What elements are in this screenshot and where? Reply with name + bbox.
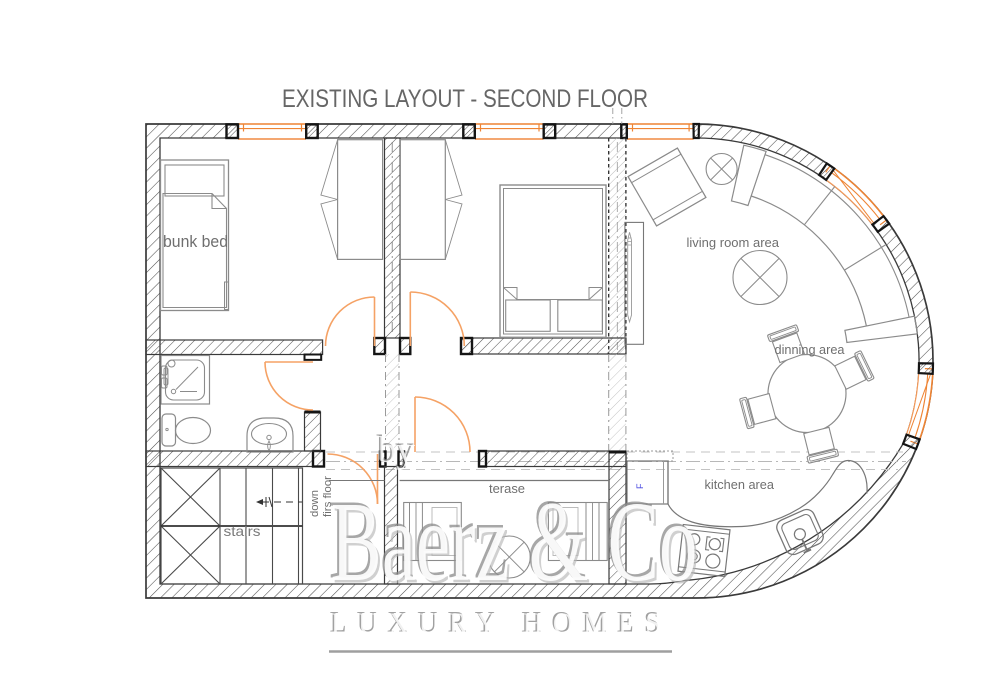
svg-text:by: by <box>378 430 416 471</box>
svg-text:EXISTING LAYOUT - SECOND FLOOR: EXISTING LAYOUT - SECOND FLOOR <box>282 85 648 113</box>
svg-text:dinning area: dinning area <box>775 342 846 357</box>
svg-text:LUXURY HOMES: LUXURY HOMES <box>331 607 671 640</box>
svg-text:stairs: stairs <box>224 523 261 539</box>
svg-text:bunk bed: bunk bed <box>163 233 228 251</box>
svg-text:living room area: living room area <box>687 235 780 250</box>
svg-text:down: down <box>309 490 321 517</box>
svg-text:kitchen area: kitchen area <box>705 477 775 492</box>
svg-text:Baerz & Co: Baerz & Co <box>331 479 698 606</box>
